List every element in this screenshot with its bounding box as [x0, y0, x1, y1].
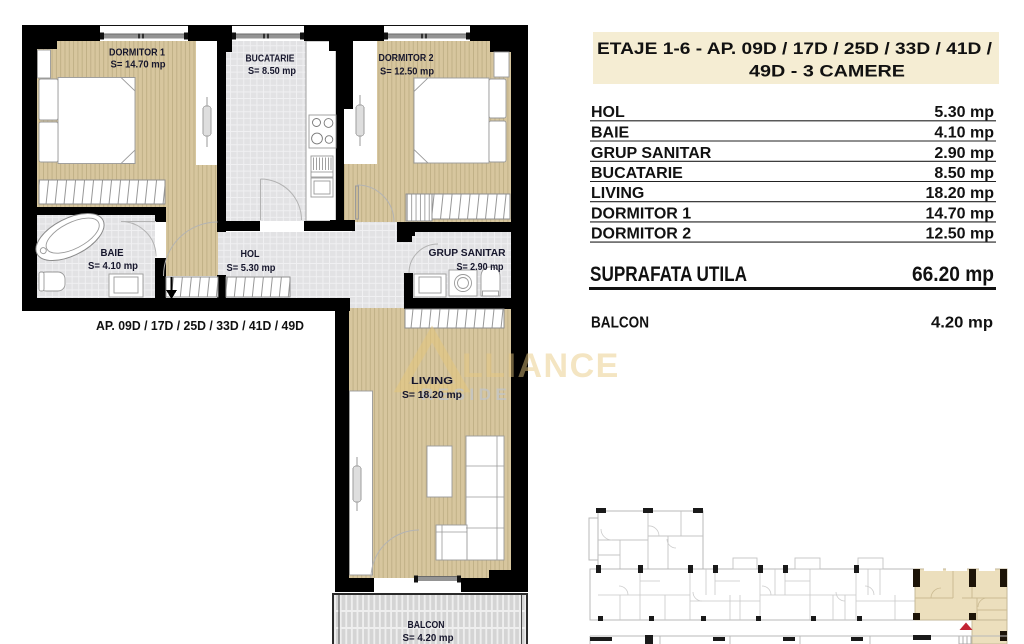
- svg-text:2.90 mp: 2.90 mp: [934, 145, 994, 162]
- svg-text:8.50 mp: 8.50 mp: [934, 165, 994, 182]
- svg-text:LIVING: LIVING: [591, 185, 644, 202]
- svg-text:HOL: HOL: [591, 104, 625, 121]
- svg-text:BALCON: BALCON: [408, 620, 445, 631]
- svg-text:BAIE: BAIE: [591, 125, 630, 142]
- svg-text:S= 8.50 mp: S= 8.50 mp: [248, 66, 296, 77]
- svg-text:BAIE: BAIE: [101, 248, 124, 259]
- svg-text:4.20 mp: 4.20 mp: [931, 315, 993, 332]
- svg-text:AP. 09D / 17D / 25D / 33D / 4: AP. 09D / 17D / 25D / 33D / 41D / 49D: [96, 318, 304, 333]
- svg-text:S= 14.70 mp: S= 14.70 mp: [111, 60, 166, 71]
- svg-text:BALCON: BALCON: [591, 315, 649, 332]
- svg-text:LIVING: LIVING: [411, 376, 453, 387]
- svg-text:BUCATARIE: BUCATARIE: [246, 54, 295, 65]
- svg-text:DORMITOR 1: DORMITOR 1: [591, 205, 691, 222]
- svg-text:18.20 mp: 18.20 mp: [926, 185, 995, 202]
- svg-text:5.30 mp: 5.30 mp: [934, 104, 994, 121]
- svg-text:ETAJE 1-6 - AP. 09D / 17D /: ETAJE 1-6 - AP. 09D / 17D / 25D / 33D / …: [597, 40, 992, 58]
- svg-text:4.10 mp: 4.10 mp: [934, 125, 994, 142]
- svg-text:49D - 3 CAMERE: 49D - 3 CAMERE: [749, 63, 905, 81]
- svg-text:GRUP SANITAR: GRUP SANITAR: [591, 145, 712, 162]
- svg-text:DORMITOR 2: DORMITOR 2: [379, 53, 434, 64]
- svg-text:66.20 mp: 66.20 mp: [912, 263, 994, 286]
- svg-text:GRUP SANITAR: GRUP SANITAR: [429, 248, 507, 259]
- svg-text:LLIANCE: LLIANCE: [462, 347, 620, 385]
- svg-text:S= 4.20 mp: S= 4.20 mp: [403, 633, 454, 644]
- svg-text:BUCATARIE: BUCATARIE: [591, 165, 683, 182]
- svg-text:14.70 mp: 14.70 mp: [926, 205, 995, 222]
- svg-text:DORMITOR 1: DORMITOR 1: [109, 48, 165, 59]
- svg-text:DORMITOR 2: DORMITOR 2: [591, 226, 691, 243]
- svg-text:S= 12.50 mp: S= 12.50 mp: [380, 67, 434, 78]
- svg-text:S= 4.10 mp: S= 4.10 mp: [88, 261, 138, 272]
- svg-text:SUPRAFATA UTILA: SUPRAFATA UTILA: [590, 263, 747, 286]
- svg-text:S= 5.30 mp: S= 5.30 mp: [227, 263, 276, 274]
- svg-text:S= 18.20 mp: S= 18.20 mp: [402, 390, 462, 401]
- svg-text:HOL: HOL: [241, 249, 260, 260]
- svg-text:12.50 mp: 12.50 mp: [926, 226, 995, 243]
- svg-text:S= 2.90 mp: S= 2.90 mp: [457, 262, 504, 273]
